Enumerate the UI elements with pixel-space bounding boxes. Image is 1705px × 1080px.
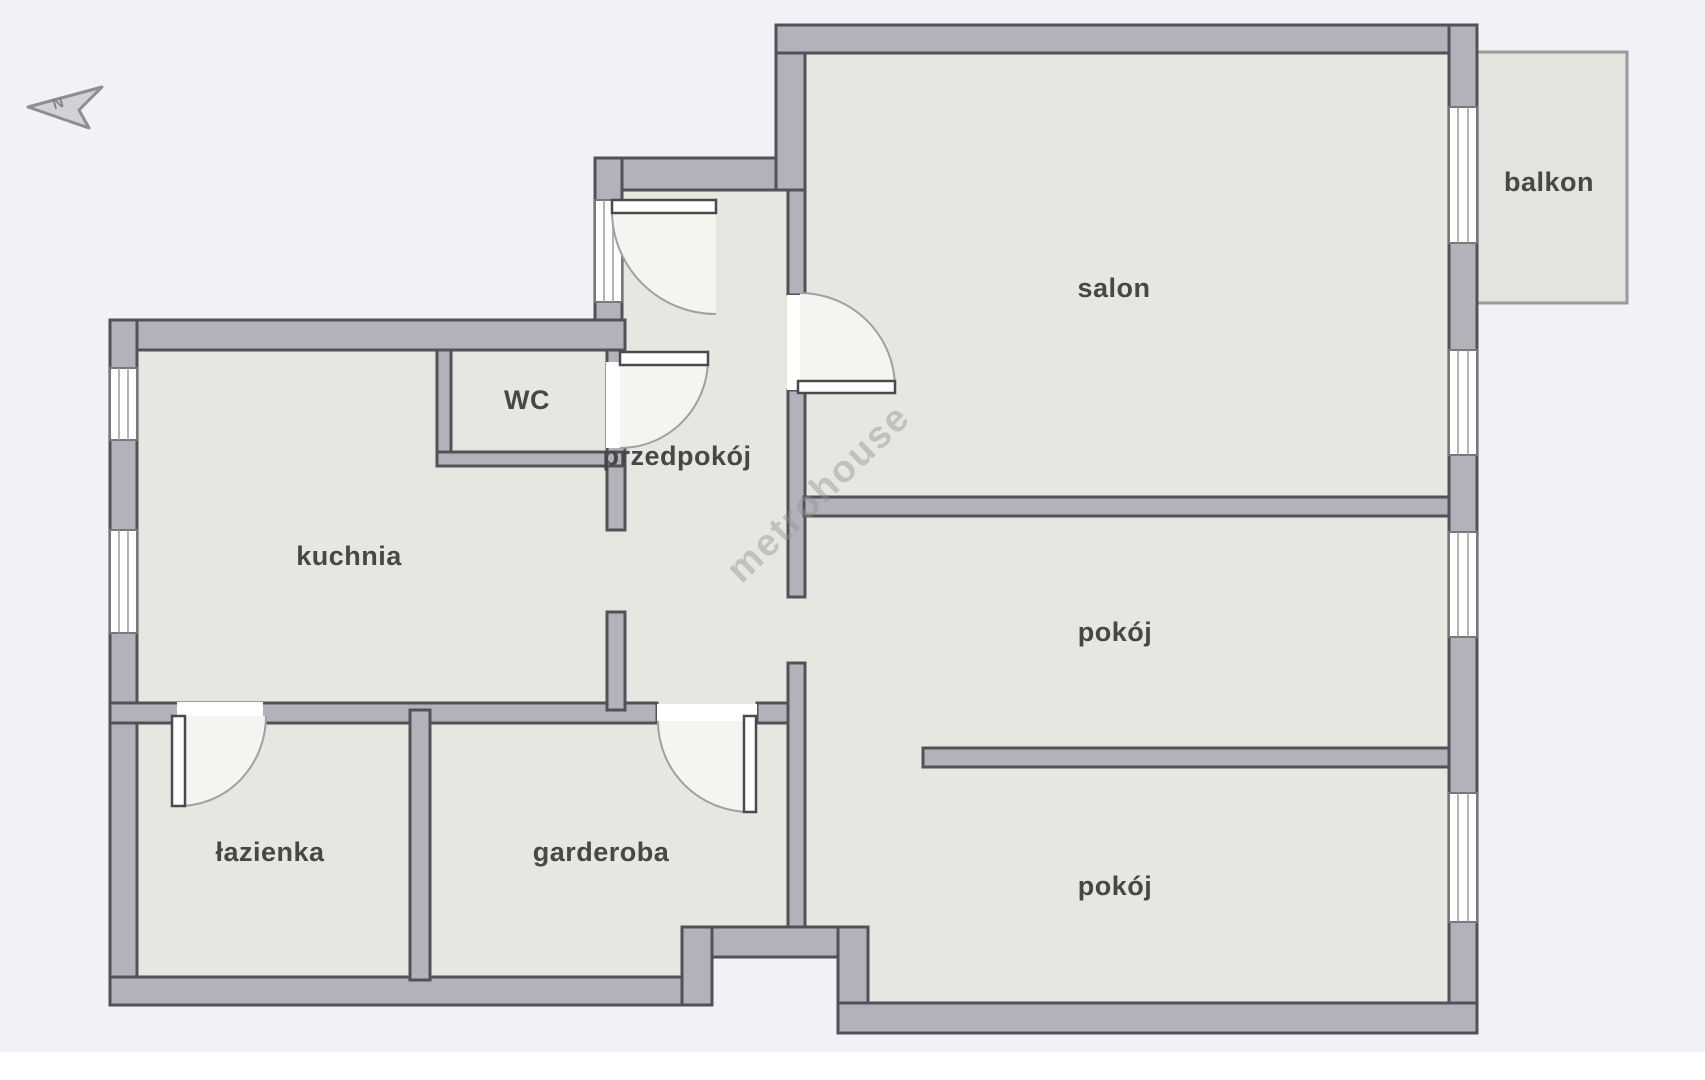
wall-exterior-bottom-left [110,977,682,1005]
wall-kitchen-hall-lower [607,612,625,710]
wall-hall-top [595,158,805,190]
window-salon-right [1449,350,1477,455]
door-leaf-garderoba [744,716,756,812]
room-label-salon: salon [1077,273,1150,303]
window-pokoj-bottom [1449,793,1477,922]
wall-lazienka-garderoba [410,710,430,980]
wall-exterior-bottom-right [838,1003,1477,1033]
wall-hall-salon-a [788,190,805,295]
wall-wc-left [437,350,451,466]
window-pokoj-middle [1449,532,1477,637]
room-label-pokoj-middle: pokój [1078,617,1153,647]
wall-kitchen-top [110,320,625,350]
wall-pokoj-pokoj [923,748,1449,767]
room-label-lazienka: łazienka [215,837,325,867]
wall-garderoba-right [788,663,805,927]
room-label-garderoba: garderoba [533,837,670,867]
floor-plan-page: N [0,0,1705,1080]
door-leaf-wc [620,352,708,365]
room-label-wc: WC [504,385,550,415]
door-leaf-lazienka [172,716,185,806]
room-label-pokoj-bottom: pokój [1078,871,1153,901]
page-bottom-strip [0,1052,1705,1080]
room-label-przedpokoj: przedpokój [602,441,751,471]
window-kitchen-1 [110,368,137,440]
room-label-balkon: balkon [1504,167,1594,197]
window-kitchen-2 [110,530,137,633]
door-leaf-salon [798,381,895,393]
door-leaf-entrance [612,200,716,213]
balcony-door [1449,107,1477,243]
wall-step-left [682,927,712,1005]
wall-exterior-top [776,25,1477,53]
room-label-kuchnia: kuchnia [296,541,402,571]
floor-plan-drawing: N [0,0,1705,1080]
wall-salon-pokoj [804,497,1449,516]
wall-wc-bottom [437,452,625,466]
